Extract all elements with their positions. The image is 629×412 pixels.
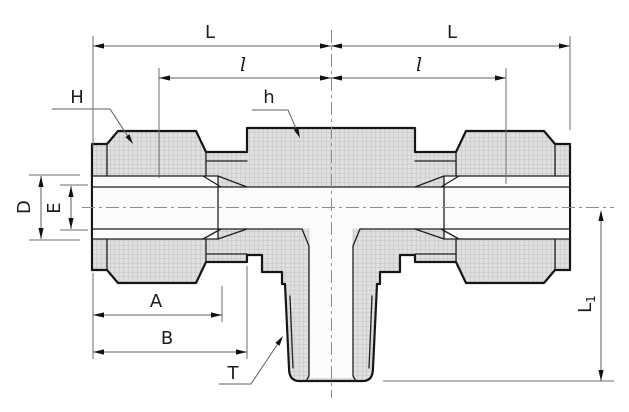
arrowhead <box>598 210 603 221</box>
dim-label-L-left: L <box>205 22 215 43</box>
dim-T: T <box>219 336 283 384</box>
dim-label-l-right: l <box>416 54 422 76</box>
arrowhead <box>331 43 342 48</box>
dim-D: D <box>14 176 44 239</box>
arrowhead <box>68 186 73 197</box>
drawing-canvas: L L l l H <box>0 0 629 412</box>
arrowhead <box>236 349 247 354</box>
arrowhead <box>320 75 331 80</box>
arrowhead <box>159 75 170 80</box>
dim-label-A: A <box>150 291 163 312</box>
dim-label-T: T <box>227 363 240 384</box>
dim-L-right: L <box>331 22 570 49</box>
dim-label-l-left: l <box>240 54 246 76</box>
arrowhead <box>68 218 73 229</box>
arrowhead <box>559 43 570 48</box>
dim-l-right: l <box>331 54 506 81</box>
dim-label-B: B <box>161 328 173 349</box>
dim-label-D: D <box>14 200 35 214</box>
dim-B: B <box>93 328 247 355</box>
arrowhead <box>495 75 506 80</box>
arrowhead <box>320 43 331 48</box>
dim-L1: L1 <box>575 210 604 381</box>
arrowhead <box>211 312 222 317</box>
dim-label-L-right: L <box>447 22 457 43</box>
arrowhead <box>93 349 104 354</box>
arrowhead <box>38 228 43 239</box>
arrowhead <box>275 336 283 346</box>
dim-l-left: l <box>159 54 331 81</box>
dim-label-h: h <box>263 87 274 108</box>
technical-drawing: L L l l H <box>0 0 629 412</box>
dim-E: E <box>44 186 74 229</box>
arrowhead <box>93 312 104 317</box>
dim-A: A <box>93 291 222 318</box>
dim-label-L1: L1 <box>575 295 598 313</box>
arrowhead <box>38 176 43 187</box>
dim-L-left: L <box>93 22 331 49</box>
arrowhead <box>598 370 603 381</box>
dim-label-E: E <box>44 202 65 213</box>
arrowhead <box>331 75 342 80</box>
dim-label-L1-main: L <box>575 303 596 313</box>
dim-label-L1-sub: 1 <box>584 295 598 303</box>
arrowhead <box>93 43 104 48</box>
dim-label-H: H <box>70 87 84 108</box>
